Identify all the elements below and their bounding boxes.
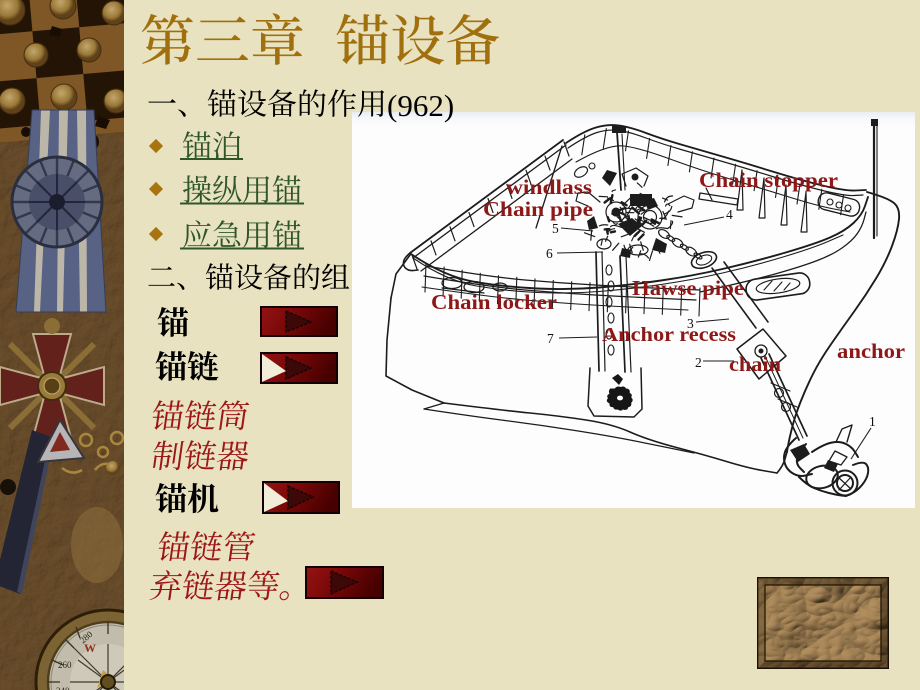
svg-text:Chain pipe: Chain pipe [483,197,593,221]
svg-text:Chain locker: Chain locker [431,290,557,314]
svg-text:2: 2 [695,355,702,370]
svg-text:windlass: windlass [506,175,592,199]
svg-text:anchor: anchor [837,339,905,363]
svg-text:Hawse pipe: Hawse pipe [632,276,744,300]
svg-text:7: 7 [547,331,554,346]
svg-text:Anchor recess: Anchor recess [602,324,736,346]
svg-text:4: 4 [726,207,733,222]
svg-text:1: 1 [869,414,876,429]
svg-text:chain: chain [729,352,781,376]
svg-text:Chain stopper: Chain stopper [699,168,838,192]
svg-text:6: 6 [546,246,553,261]
svg-text:5: 5 [552,221,559,236]
